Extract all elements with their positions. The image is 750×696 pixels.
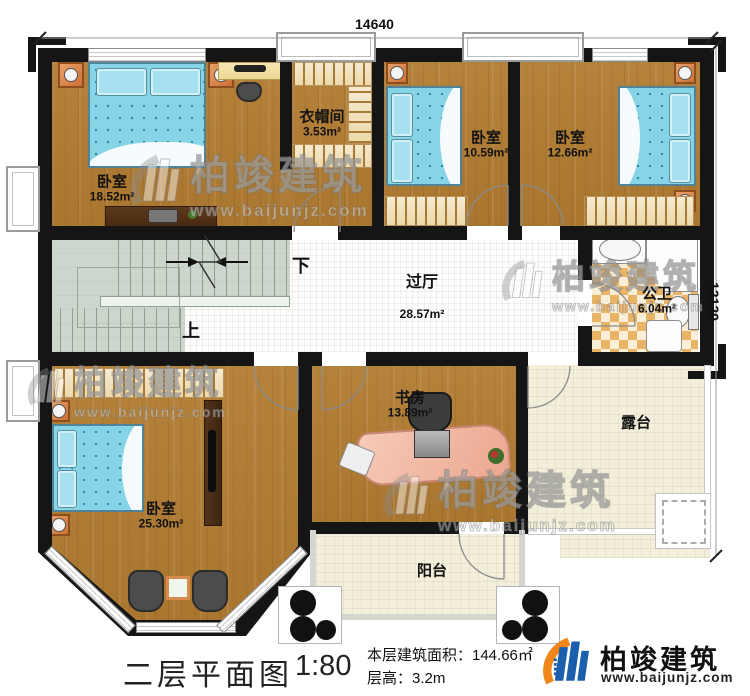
wall-hall-bottom-1 [38,352,254,366]
wall-hall-top-2 [338,226,467,240]
plan-title: 二层平面图 [123,650,293,696]
room-label-bedroom-bl: 卧室25.30m² [139,500,184,531]
bedroom-tl-floor-pass [280,170,292,226]
window-top-2 [592,48,648,62]
plant-icon [488,448,504,464]
plan-scale: 1:80 [295,650,351,683]
company-logo-icon [538,634,596,692]
armchair [128,570,164,612]
cloakroom-rack-top [292,62,372,86]
floor-plan: 下 上 [0,0,750,696]
toilet-tank [688,294,699,330]
laptop-icon [148,209,178,223]
wall-study-right [516,365,528,534]
side-table [166,576,190,600]
corner-mark-top-left [28,37,66,72]
wall-bathroom-left [578,226,592,280]
tv-icon [208,430,216,492]
plan-height-text: 层高：3.2m [367,668,445,690]
stair-down-label: 下 [292,252,310,278]
cloakroom-rack-bottom [292,144,372,168]
dresser-item [234,65,266,72]
dimension-top: 14640 [355,16,394,32]
armchair [192,570,228,612]
plan-area-text: 本层建筑面积：144.66㎡ [367,645,533,667]
bed-bedroom-tr [618,86,696,186]
room-label-bathroom: 公卫6.04m² [638,285,676,316]
bed-bedroom-tm [386,86,462,186]
planter-box [278,586,342,644]
wall-bedroom-partition [508,48,520,226]
wall-hall-bottom-2 [298,352,322,366]
bed-bedroom-bl [52,424,144,512]
room-label-terrace: 露台 [621,414,651,431]
window-left-2 [6,360,40,422]
cloakroom-rack-right [348,86,372,144]
bed-bedroom-tl [88,62,206,168]
dimension-right: 12120 [706,282,722,321]
room-label-bedroom-tl: 卧室18.52m² [90,173,135,204]
wall-hall-bottom-3 [366,352,528,366]
wall-cloakroom-left [280,48,292,170]
room-label-hall: 过厅28.57m² [400,274,445,322]
company-logo-url: www.baijunjz.com [601,670,734,685]
room-label-bedroom-tr: 卧室12.66m² [548,129,593,160]
wall-hall-top-1 [38,226,292,240]
wardrobe-bedroom-tm [384,196,468,226]
sink-icon [599,237,641,261]
room-label-balcony: 阳台 [417,562,447,579]
dresser-chair [236,82,262,102]
plant-icon [188,210,197,219]
window-top-1 [88,48,206,62]
stair-up-label: 上 [182,317,200,343]
window-bay-top-1 [276,32,376,62]
room-label-study: 书房13.89m² [388,389,433,420]
terrace-planter-inner [662,500,706,544]
wall-bedroom-bl-right [300,366,312,546]
window-left-1 [6,166,40,232]
room-label-bedroom-tm: 卧室10.59m² [464,129,509,160]
nightstand [386,62,408,84]
monitor-icon [414,430,450,458]
stair-inner-outline [77,267,180,328]
wall-cloakroom-right [372,48,384,240]
room-label-cloakroom: 衣帽间3.53m² [299,108,344,139]
washer-icon [646,320,682,352]
wall-hall-top-3 [508,226,522,240]
wall-left [38,48,52,548]
wardrobe-bedroom-bl [52,368,224,398]
wardrobe-bedroom-tr [584,196,694,226]
corner-mark-top-right [688,37,726,72]
window-bay-top-2 [462,32,584,62]
